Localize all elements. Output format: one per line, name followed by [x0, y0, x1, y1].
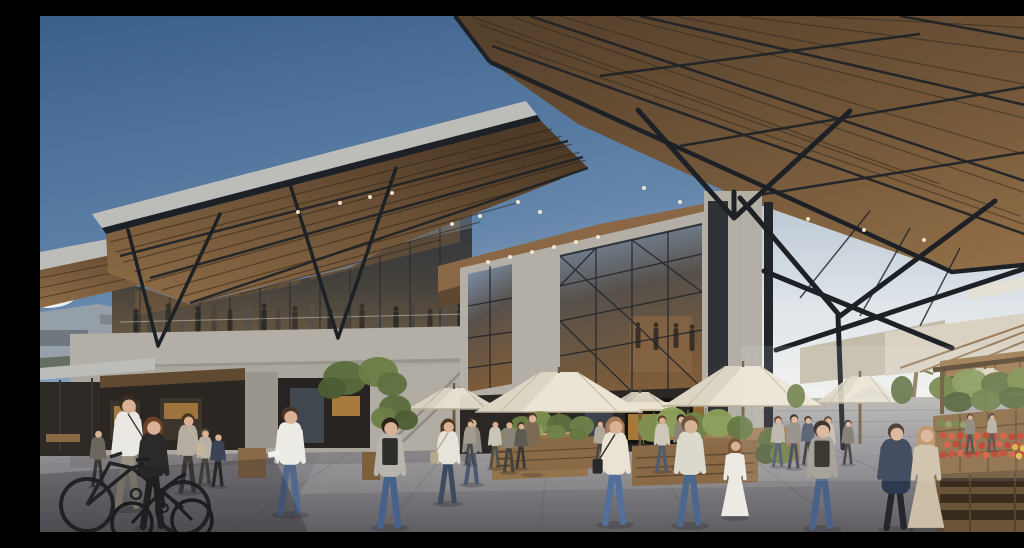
ceiling-light: [642, 186, 646, 190]
ceiling-light: [450, 222, 454, 226]
ceiling-light: [516, 200, 520, 204]
ceiling-light: [478, 214, 482, 218]
scene: Photorealistic architectural rendering: …: [40, 16, 1024, 532]
ceiling-light: [538, 210, 542, 214]
bag: [430, 452, 438, 463]
ceiling-light: [574, 240, 578, 244]
bag: [197, 444, 204, 455]
ceiling-light: [678, 200, 682, 204]
rendering-canvas: [40, 16, 1024, 532]
plant: [318, 377, 346, 399]
ceiling-light: [596, 235, 600, 239]
ceiling-light: [296, 210, 300, 214]
backpack: [382, 438, 398, 465]
plant: [377, 372, 407, 396]
plant: [569, 428, 587, 440]
ceiling-light: [862, 228, 866, 232]
plant: [546, 425, 566, 439]
ceiling-light: [486, 260, 490, 264]
ceiling-light: [508, 255, 512, 259]
mezzanine-visitor: [211, 303, 216, 333]
ceiling-light: [552, 245, 556, 249]
ceiling-light: [922, 238, 926, 242]
ceiling-light: [338, 201, 342, 205]
mezzanine-visitor: [309, 303, 314, 333]
interior-visitor: [690, 324, 695, 351]
mezzanine-visitor: [133, 309, 138, 333]
mezzanine-visitor: [275, 309, 280, 333]
ceiling-light: [390, 191, 394, 195]
mezzanine-visitor: [292, 306, 297, 333]
haze-overlay: [740, 346, 1024, 481]
ceiling-light: [368, 195, 372, 199]
bag: [593, 459, 603, 474]
ceiling-light: [806, 217, 810, 221]
ceiling-light: [530, 250, 534, 254]
